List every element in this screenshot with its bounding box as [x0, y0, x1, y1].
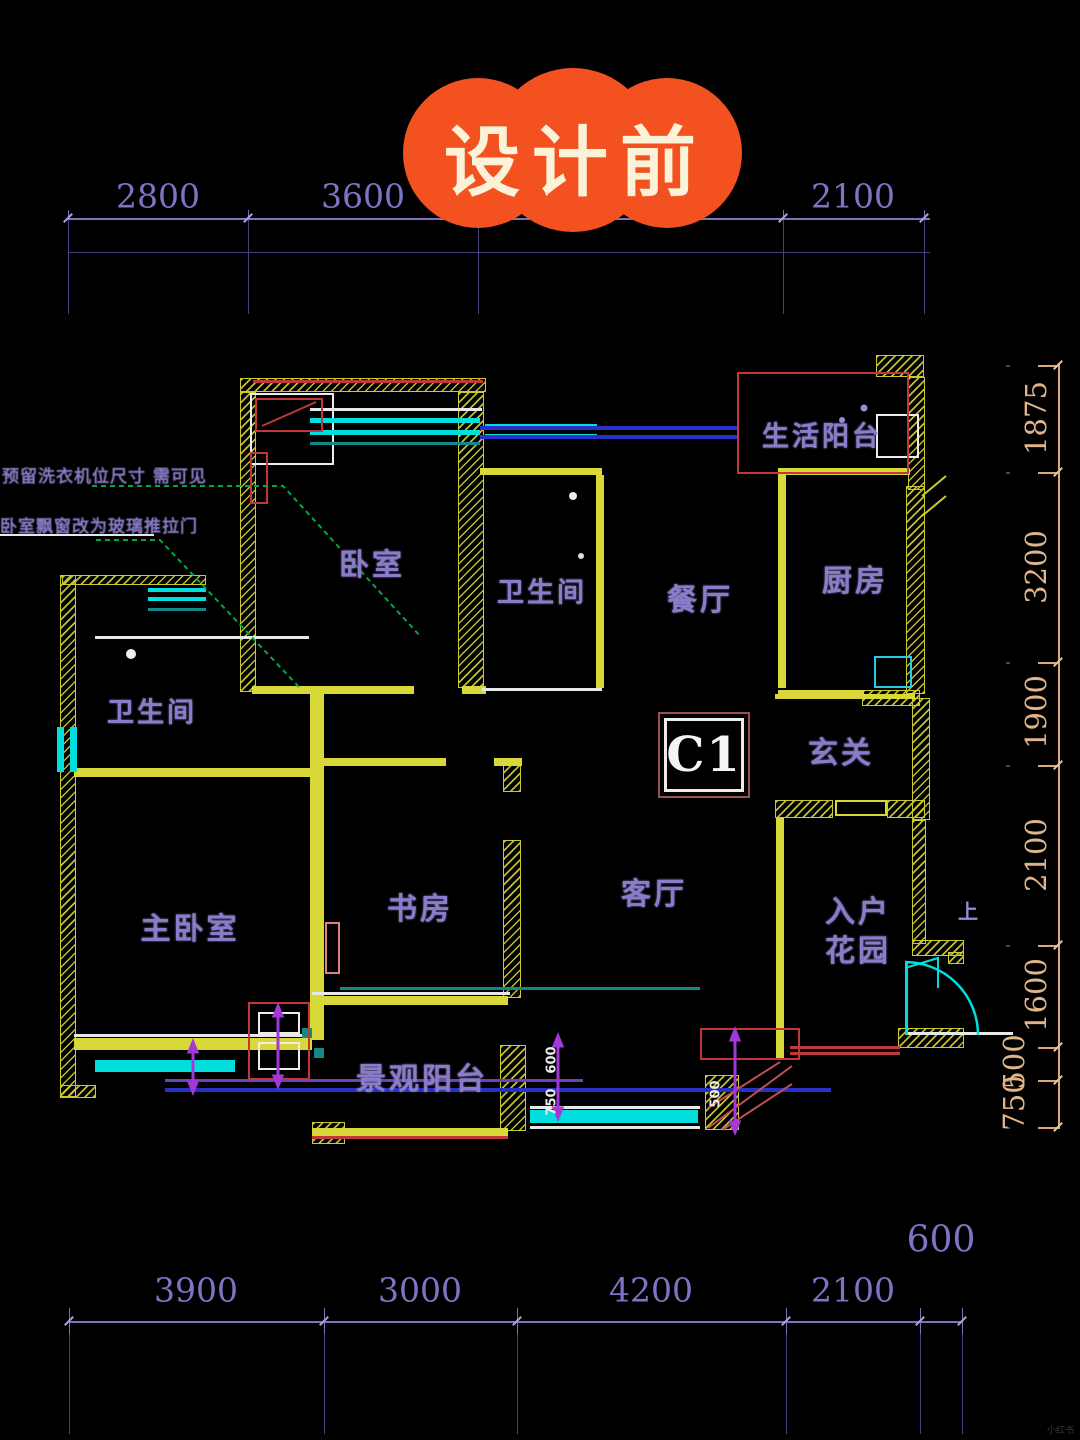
dim-top-2100: 2100	[811, 177, 895, 216]
fixture-dot	[861, 405, 868, 412]
dim-mini-500: 500	[709, 1080, 724, 1107]
direction-up-marker: 上	[958, 896, 978, 925]
room-label-life-balcony: 生活阳台	[762, 415, 882, 454]
dim-mini-750: 750	[545, 1088, 560, 1115]
room-label-bedroom: 卧室	[339, 540, 405, 584]
dim-right-2100: 2100	[1019, 818, 1053, 892]
annotation-line-2: 卧室飘窗改为玻璃推拉门	[0, 512, 198, 537]
room-label-master: 主卧室	[141, 904, 240, 948]
room-label-bath-top: 卫生间	[497, 571, 587, 610]
dim-bottom-4200: 4200	[609, 1271, 693, 1310]
floorplan-canvas: 卧室 卫生间 餐厅 厨房 生活阳台 玄关 客厅 书房 主卧室 卫生间 入户花园 …	[0, 0, 1080, 1440]
room-label-study: 书房	[387, 884, 453, 928]
leader-line-2	[96, 540, 299, 687]
watermark: 小红书	[1047, 1423, 1074, 1436]
dim-right-1900: 1900	[1019, 675, 1053, 749]
dim-right-3200: 3200	[1019, 530, 1053, 604]
dim-top-3600: 3600	[321, 177, 405, 216]
closet-diagonal	[262, 402, 316, 426]
dim-bottom-600: 600	[907, 1220, 976, 1261]
badge-label: 设计前	[420, 96, 732, 216]
step-dash	[922, 496, 946, 516]
dim-right-1875: 1875	[1019, 381, 1053, 455]
annotation-line-1: 预留洗衣机位尺寸 需可见	[2, 462, 207, 487]
room-label-view-balcony: 景观阳台	[356, 1054, 488, 1098]
dim-right-1600: 1600	[1019, 958, 1053, 1032]
dim-top-2800: 2800	[116, 177, 200, 216]
fixture-dot	[126, 649, 136, 659]
dim-bottom-3900: 3900	[154, 1271, 238, 1310]
dim-bottom-3000: 3000	[378, 1271, 462, 1310]
dim-right-750: 750	[997, 1075, 1031, 1130]
room-label-kitchen: 厨房	[822, 556, 888, 600]
fixture-dot	[578, 553, 584, 559]
room-label-hallway: 玄关	[808, 728, 874, 772]
room-label-bath-left: 卫生间	[107, 691, 197, 730]
unit-code-box: C1	[658, 712, 750, 798]
entry-door-arc	[905, 962, 978, 1035]
step-dash	[922, 476, 946, 496]
dim-bottom-2100: 2100	[811, 1271, 895, 1310]
dim-mini-600: 600	[545, 1046, 560, 1073]
room-label-entry-garden: 入户花园	[815, 893, 901, 971]
room-label-dining: 餐厅	[667, 575, 733, 619]
room-label-living: 客厅	[621, 869, 687, 913]
fixture-dot	[569, 492, 577, 500]
unit-code-label: C1	[664, 718, 744, 792]
